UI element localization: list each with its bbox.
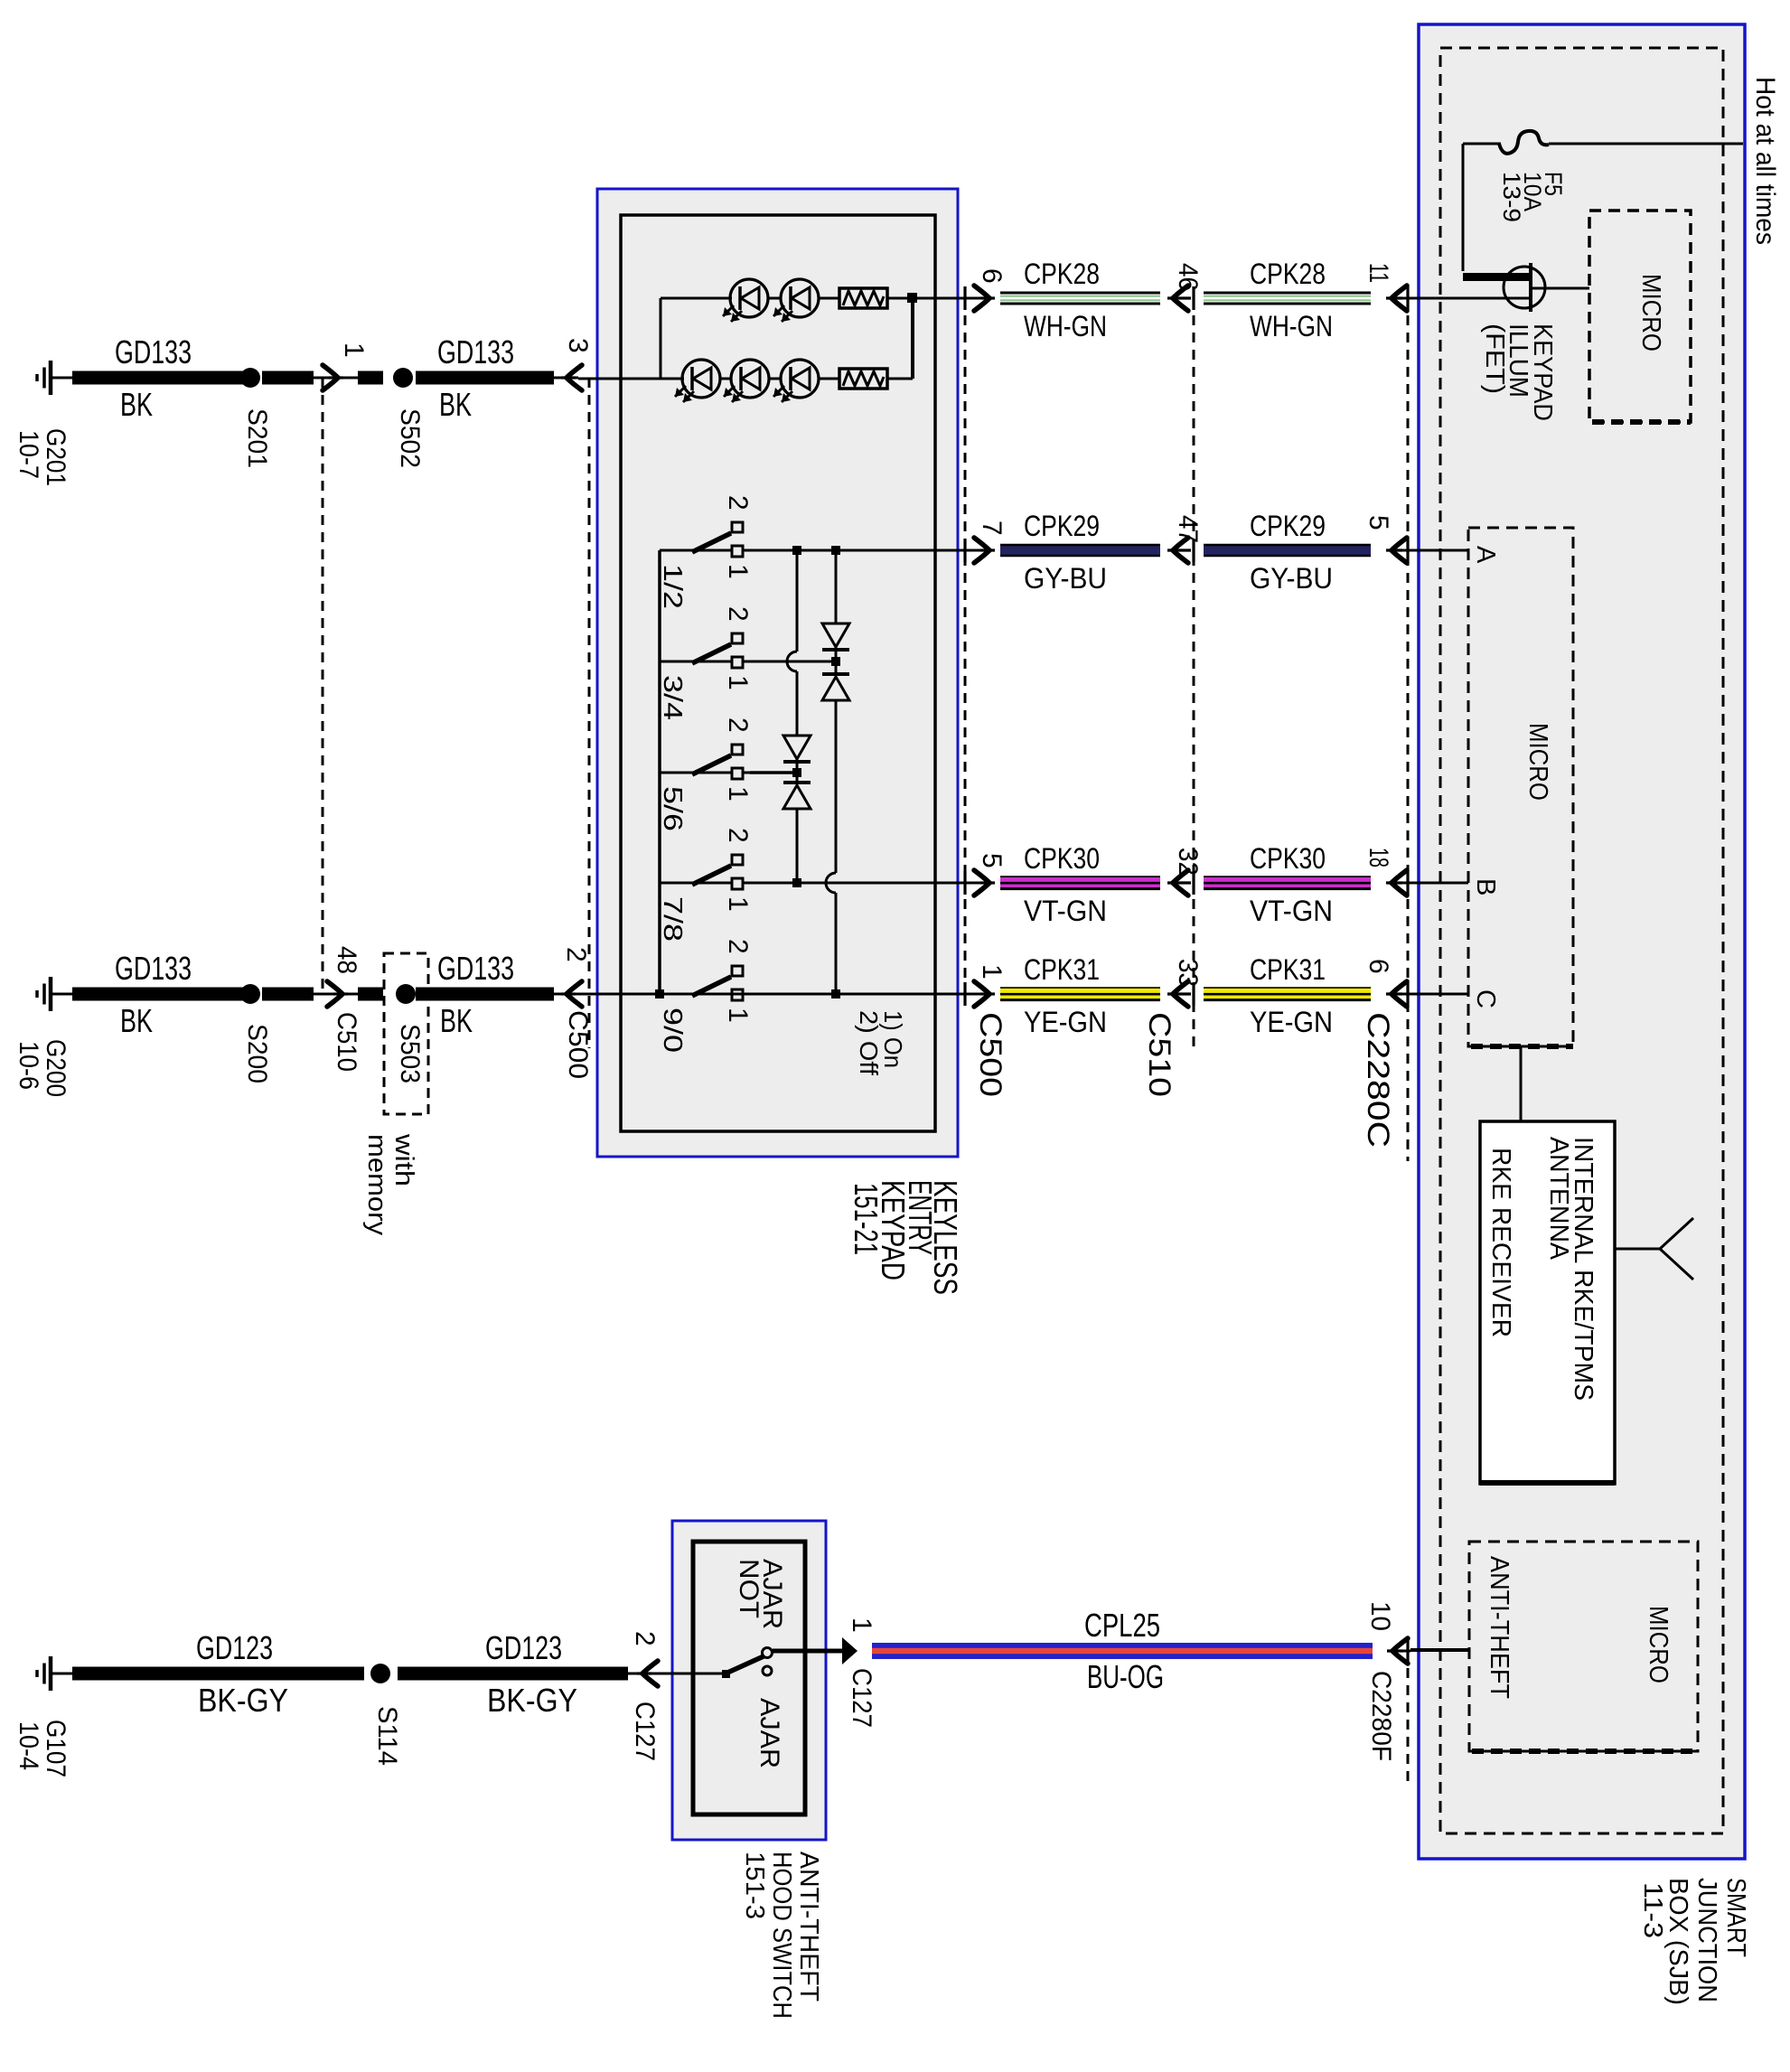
svg-text:RKE RECEIVER: RKE RECEIVER [1486,1148,1515,1337]
svg-text:ANTI-THEFT: ANTI-THEFT [794,1852,823,2002]
svg-text:BK-GY: BK-GY [198,1682,288,1719]
svg-text:CPK30: CPK30 [1024,842,1100,875]
svg-text:MICRO: MICRO [1644,1606,1673,1683]
svg-text:10-6: 10-6 [14,1041,43,1090]
svg-text:G200: G200 [41,1039,70,1097]
svg-text:151-21: 151-21 [848,1183,885,1255]
svg-text:2: 2 [630,1631,660,1646]
svg-text:5/6: 5/6 [658,786,687,831]
svg-text:C2280C: C2280C [1361,1012,1395,1148]
svg-text:1/2: 1/2 [658,564,687,609]
svg-text:7/8: 7/8 [658,896,687,942]
svg-text:7: 7 [977,520,1007,536]
svg-text:MICRO: MICRO [1523,723,1552,801]
svg-text:2: 2 [723,828,753,843]
svg-text:2: 2 [723,495,753,511]
svg-text:11: 11 [1364,263,1393,283]
svg-text:151-3: 151-3 [740,1852,769,1919]
svg-text:3: 3 [563,338,593,353]
svg-text:CPK31: CPK31 [1024,953,1100,986]
svg-text:BK: BK [120,386,153,423]
svg-text:GD133: GD133 [437,950,514,987]
svg-text:SMART: SMART [1721,1878,1750,1957]
svg-text:(FET): (FET) [1480,323,1509,394]
svg-text:CPK28: CPK28 [1024,258,1100,290]
svg-text:MICRO: MICRO [1636,274,1665,352]
svg-text:1: 1 [339,342,369,358]
svg-text:10: 10 [1365,1601,1395,1631]
svg-text:VT-GN: VT-GN [1250,895,1333,927]
svg-text:3/4: 3/4 [658,675,687,720]
svg-text:C2280F: C2280F [1366,1671,1396,1761]
svg-text:WH-GN: WH-GN [1250,310,1333,342]
svg-text:1: 1 [723,675,753,690]
svg-text:GD133: GD133 [115,950,192,987]
svg-text:S114: S114 [372,1706,402,1766]
svg-text:Hot at all times: Hot at all times [1750,77,1780,245]
svg-text:2: 2 [723,606,753,622]
svg-text:CPK28: CPK28 [1250,258,1326,290]
svg-text:2: 2 [561,947,591,962]
svg-text:13-9: 13-9 [1498,172,1525,222]
svg-text:1: 1 [723,896,753,912]
svg-text:A: A [1471,546,1500,564]
svg-text:10-7: 10-7 [14,430,43,479]
svg-text:47: 47 [1173,515,1203,543]
svg-text:GD133: GD133 [115,333,192,370]
svg-text:6: 6 [977,268,1007,284]
svg-text:BU-OG: BU-OG [1087,1658,1164,1695]
svg-text:AJAR: AJAR [757,1559,787,1629]
svg-text:B: B [1471,878,1500,895]
svg-text:6: 6 [1364,959,1393,974]
svg-text:BK: BK [440,1002,473,1039]
svg-text:memory: memory [362,1134,391,1236]
svg-text:C510: C510 [332,1012,361,1072]
svg-text:10-4: 10-4 [14,1721,43,1770]
svg-text:1: 1 [723,564,753,579]
svg-text:18: 18 [1364,848,1393,867]
svg-text:BK: BK [439,386,472,423]
svg-text:2) Off: 2) Off [855,1010,883,1075]
svg-text:HOOD SWITCH: HOOD SWITCH [767,1852,796,2019]
svg-text:with: with [389,1133,418,1186]
svg-text:9/0: 9/0 [658,1008,687,1053]
svg-text:2: 2 [723,717,753,733]
svg-text:C500: C500 [563,1010,593,1079]
svg-text:G201: G201 [41,428,70,486]
svg-text:YE-GN: YE-GN [1024,1006,1107,1038]
svg-text:VT-GN: VT-GN [1024,895,1107,927]
svg-text:ANTI-THEFT: ANTI-THEFT [1485,1556,1514,1699]
svg-text:S502: S502 [395,408,425,468]
svg-text:5: 5 [1364,515,1393,530]
svg-text:C500: C500 [973,1012,1007,1097]
svg-text:C510: C510 [1142,1012,1176,1097]
svg-text:48: 48 [332,946,361,974]
svg-text:S200: S200 [242,1024,272,1083]
svg-text:CPK31: CPK31 [1250,953,1326,986]
svg-text:GY-BU: GY-BU [1024,562,1107,595]
svg-text:2: 2 [723,939,753,954]
svg-text:C127: C127 [630,1702,660,1761]
svg-text:ANTENNA: ANTENNA [1544,1137,1573,1261]
svg-text:CPK29: CPK29 [1250,510,1326,542]
svg-text:46: 46 [1173,263,1203,291]
svg-text:1: 1 [977,964,1007,980]
svg-text:GD123: GD123 [485,1629,562,1666]
svg-text:G107: G107 [41,1720,70,1777]
svg-text:S201: S201 [242,408,272,468]
svg-text:GY-BU: GY-BU [1250,562,1333,595]
svg-text:CPK30: CPK30 [1250,842,1326,875]
svg-text:C127: C127 [847,1668,876,1728]
svg-text:JUNCTION: JUNCTION [1692,1878,1721,2002]
svg-text:AJAR: AJAR [754,1698,784,1768]
svg-text:11-3: 11-3 [1638,1882,1667,1938]
svg-text:CPL25: CPL25 [1084,1607,1160,1644]
svg-text:1: 1 [723,1008,753,1023]
svg-text:BK: BK [120,1002,153,1039]
svg-text:BK-GY: BK-GY [487,1682,577,1719]
svg-text:5: 5 [977,853,1007,868]
svg-text:GD133: GD133 [437,333,514,370]
svg-text:1: 1 [723,786,753,802]
svg-text:GD123: GD123 [196,1629,273,1666]
svg-text:C: C [1471,989,1500,1008]
svg-text:YE-GN: YE-GN [1250,1006,1333,1038]
svg-text:S503: S503 [395,1024,425,1083]
svg-text:33: 33 [1173,959,1203,987]
svg-text:CPK29: CPK29 [1024,510,1100,542]
svg-text:1: 1 [847,1617,876,1633]
svg-text:WH-GN: WH-GN [1024,310,1107,342]
svg-text:32: 32 [1173,848,1203,876]
